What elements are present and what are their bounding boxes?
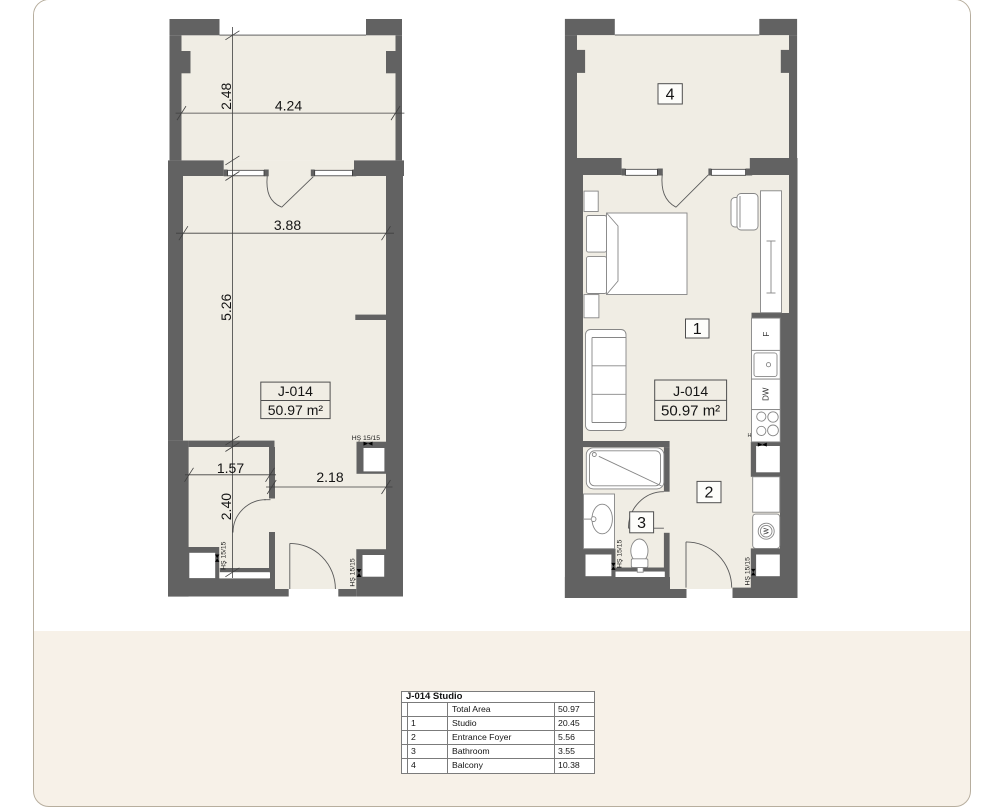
svg-text:2: 2 [705,485,714,502]
svg-text:3: 3 [637,515,646,532]
svg-text:HŞ 15/15: HŞ 15/15 [221,541,228,570]
svg-text:F: F [762,332,771,337]
svg-text:H: H [748,433,752,439]
svg-text:1: 1 [693,321,702,338]
svg-text:50.97 m²: 50.97 m² [268,402,324,418]
svg-text:2.48: 2.48 [218,82,234,109]
svg-text:2.18: 2.18 [316,469,343,485]
svg-text:J-014: J-014 [673,383,708,399]
svg-text:3.88: 3.88 [274,217,301,233]
svg-text:5.26: 5.26 [218,293,234,320]
svg-text:W: W [764,528,771,535]
svg-text:HŞ 15/15: HŞ 15/15 [617,539,624,568]
svg-text:1.57: 1.57 [217,460,244,476]
svg-text:4.24: 4.24 [275,98,302,114]
svg-text:50.97 m²: 50.97 m² [661,403,720,420]
svg-text:J-014: J-014 [278,383,313,399]
svg-text:2.40: 2.40 [218,493,234,520]
svg-text:HŞ 15/15: HŞ 15/15 [349,558,356,587]
svg-text:DW: DW [762,387,771,401]
svg-text:HŞ 15/15: HŞ 15/15 [745,557,752,586]
svg-text:HŞ 15/15: HŞ 15/15 [352,435,381,442]
svg-text:4: 4 [666,87,675,104]
